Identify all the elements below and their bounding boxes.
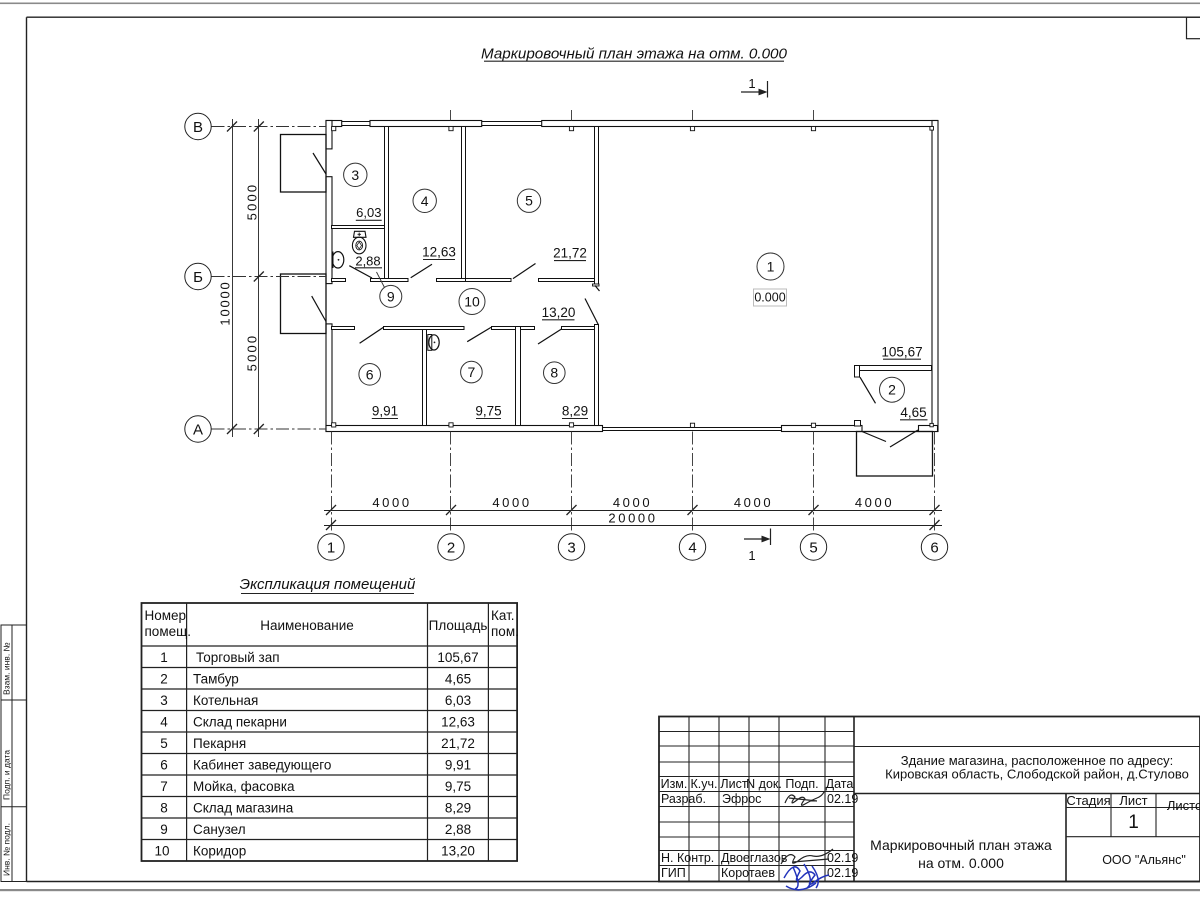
svg-text:Лист: Лист	[720, 777, 747, 791]
svg-text:Подп. и дата: Подп. и дата	[2, 750, 12, 800]
svg-text:Коротаев: Коротаев	[721, 866, 775, 880]
svg-text:Дата: Дата	[826, 777, 854, 791]
svg-text:105,67: 105,67	[437, 650, 478, 665]
svg-text:9,75: 9,75	[475, 404, 501, 419]
svg-text:Коридор: Коридор	[193, 844, 246, 859]
svg-text:Склад пекарни: Склад пекарни	[193, 715, 287, 730]
svg-text:02.19: 02.19	[827, 792, 858, 806]
svg-text:7: 7	[468, 364, 476, 380]
svg-text:105,67: 105,67	[881, 345, 922, 360]
svg-text:5: 5	[809, 540, 817, 557]
svg-text:2: 2	[888, 382, 896, 398]
svg-text:4000: 4000	[734, 495, 773, 510]
svg-text:Склад магазина: Склад магазина	[193, 801, 294, 816]
svg-text:1: 1	[327, 540, 335, 557]
svg-text:8,29: 8,29	[562, 404, 588, 419]
svg-text:4,65: 4,65	[900, 405, 926, 420]
svg-text:Лист: Лист	[1119, 793, 1147, 808]
svg-text:Мойка, фасовка: Мойка, фасовка	[193, 779, 295, 794]
svg-text:ГИП: ГИП	[661, 866, 686, 880]
svg-text:2,88: 2,88	[355, 254, 380, 269]
svg-text:4000: 4000	[372, 495, 411, 510]
svg-text:Торговый зап: Торговый зап	[196, 650, 280, 665]
svg-text:1: 1	[748, 548, 755, 563]
svg-text:Двоеглазов: Двоеглазов	[721, 851, 788, 865]
svg-text:5000: 5000	[245, 334, 260, 372]
svg-text:4,65: 4,65	[445, 672, 471, 687]
svg-text:2,88: 2,88	[445, 822, 471, 837]
svg-text:Котельная: Котельная	[193, 693, 258, 708]
svg-text:9,91: 9,91	[445, 758, 471, 773]
svg-text:8: 8	[550, 365, 558, 381]
svg-text:6: 6	[160, 758, 168, 773]
svg-text:21,72: 21,72	[441, 736, 475, 751]
svg-text:4: 4	[688, 540, 696, 557]
svg-text:2: 2	[447, 540, 455, 557]
svg-text:12,63: 12,63	[441, 715, 475, 730]
svg-text:Номер: Номер	[145, 608, 187, 623]
svg-text:Н. Контр.: Н. Контр.	[661, 851, 714, 865]
svg-text:5000: 5000	[245, 183, 260, 221]
svg-text:3: 3	[351, 167, 359, 183]
svg-text:6: 6	[366, 366, 374, 382]
svg-text:Эфрос: Эфрос	[722, 792, 761, 806]
svg-text:4: 4	[160, 715, 168, 730]
svg-text:Подп.: Подп.	[785, 777, 818, 791]
svg-text:1: 1	[1128, 812, 1139, 833]
svg-text:5: 5	[160, 736, 168, 751]
svg-text:9,91: 9,91	[372, 404, 398, 419]
svg-text:Кировская область, Слободской: Кировская область, Слободской район, д.С…	[885, 767, 1189, 782]
svg-text:Маркировочный план этажа: Маркировочный план этажа	[870, 837, 1052, 853]
svg-text:3: 3	[567, 540, 575, 557]
svg-text:6,03: 6,03	[356, 205, 381, 220]
svg-text:10: 10	[464, 294, 480, 310]
svg-text:6: 6	[930, 540, 938, 557]
svg-text:Санузел: Санузел	[193, 822, 246, 837]
svg-text:21,72: 21,72	[553, 246, 587, 261]
svg-text:Стадия: Стадия	[1066, 793, 1110, 808]
svg-text:Листов: Листов	[1167, 798, 1200, 813]
svg-text:N док.: N док.	[746, 777, 782, 791]
svg-text:Пекарня: Пекарня	[193, 736, 246, 751]
svg-text:20000: 20000	[608, 511, 657, 526]
svg-text:Наименование: Наименование	[260, 618, 354, 633]
svg-text:А: А	[193, 422, 203, 439]
svg-text:10: 10	[154, 844, 169, 859]
svg-text:пом.: пом.	[491, 624, 519, 639]
svg-text:12,63: 12,63	[422, 245, 456, 260]
svg-text:Инв. № подл.: Инв. № подл.	[2, 823, 12, 876]
svg-text:1: 1	[160, 650, 168, 665]
svg-text:Разраб.: Разраб.	[661, 792, 706, 806]
svg-text:В: В	[193, 119, 203, 136]
svg-text:4000: 4000	[492, 495, 531, 510]
svg-text:1: 1	[767, 259, 775, 275]
svg-text:Площадь: Площадь	[429, 618, 488, 633]
svg-text:9,75: 9,75	[445, 779, 471, 794]
svg-text:4000: 4000	[855, 495, 894, 510]
svg-text:9: 9	[160, 822, 168, 837]
svg-text:Изм.: Изм.	[661, 777, 688, 791]
svg-text:Взам. инв. №: Взам. инв. №	[2, 642, 12, 695]
svg-text:5: 5	[525, 193, 533, 209]
svg-text:13,20: 13,20	[441, 844, 475, 859]
svg-text:Экспликация помещений: Экспликация помещений	[240, 576, 416, 593]
svg-text:Б: Б	[193, 269, 203, 286]
svg-text:ООО "Альянс": ООО "Альянс"	[1102, 853, 1186, 867]
svg-text:8,29: 8,29	[445, 801, 471, 816]
svg-text:0.000: 0.000	[754, 291, 785, 305]
svg-text:10000: 10000	[218, 280, 233, 325]
svg-text:13,20: 13,20	[542, 305, 576, 320]
svg-text:Кат.: Кат.	[491, 608, 515, 623]
svg-text:02.19: 02.19	[827, 866, 858, 880]
svg-text:Маркировочный план этажа на от: Маркировочный план этажа на отм. 0.000	[481, 46, 787, 63]
svg-text:4: 4	[421, 193, 429, 209]
svg-text:02.19: 02.19	[827, 851, 858, 865]
svg-text:3: 3	[160, 693, 168, 708]
svg-text:1: 1	[748, 76, 755, 91]
svg-text:6,03: 6,03	[445, 693, 471, 708]
svg-text:4000: 4000	[613, 495, 652, 510]
svg-text:К.уч.: К.уч.	[691, 777, 718, 791]
svg-text:помещ.: помещ.	[145, 624, 191, 639]
svg-text:2: 2	[160, 672, 168, 687]
svg-text:7: 7	[160, 779, 168, 794]
svg-text:8: 8	[160, 801, 168, 816]
svg-text:Тамбур: Тамбур	[193, 672, 239, 687]
svg-text:на отм. 0.000: на отм. 0.000	[918, 855, 1004, 871]
svg-text:9: 9	[387, 288, 395, 304]
svg-text:Кабинет заведующего: Кабинет заведующего	[193, 758, 331, 773]
